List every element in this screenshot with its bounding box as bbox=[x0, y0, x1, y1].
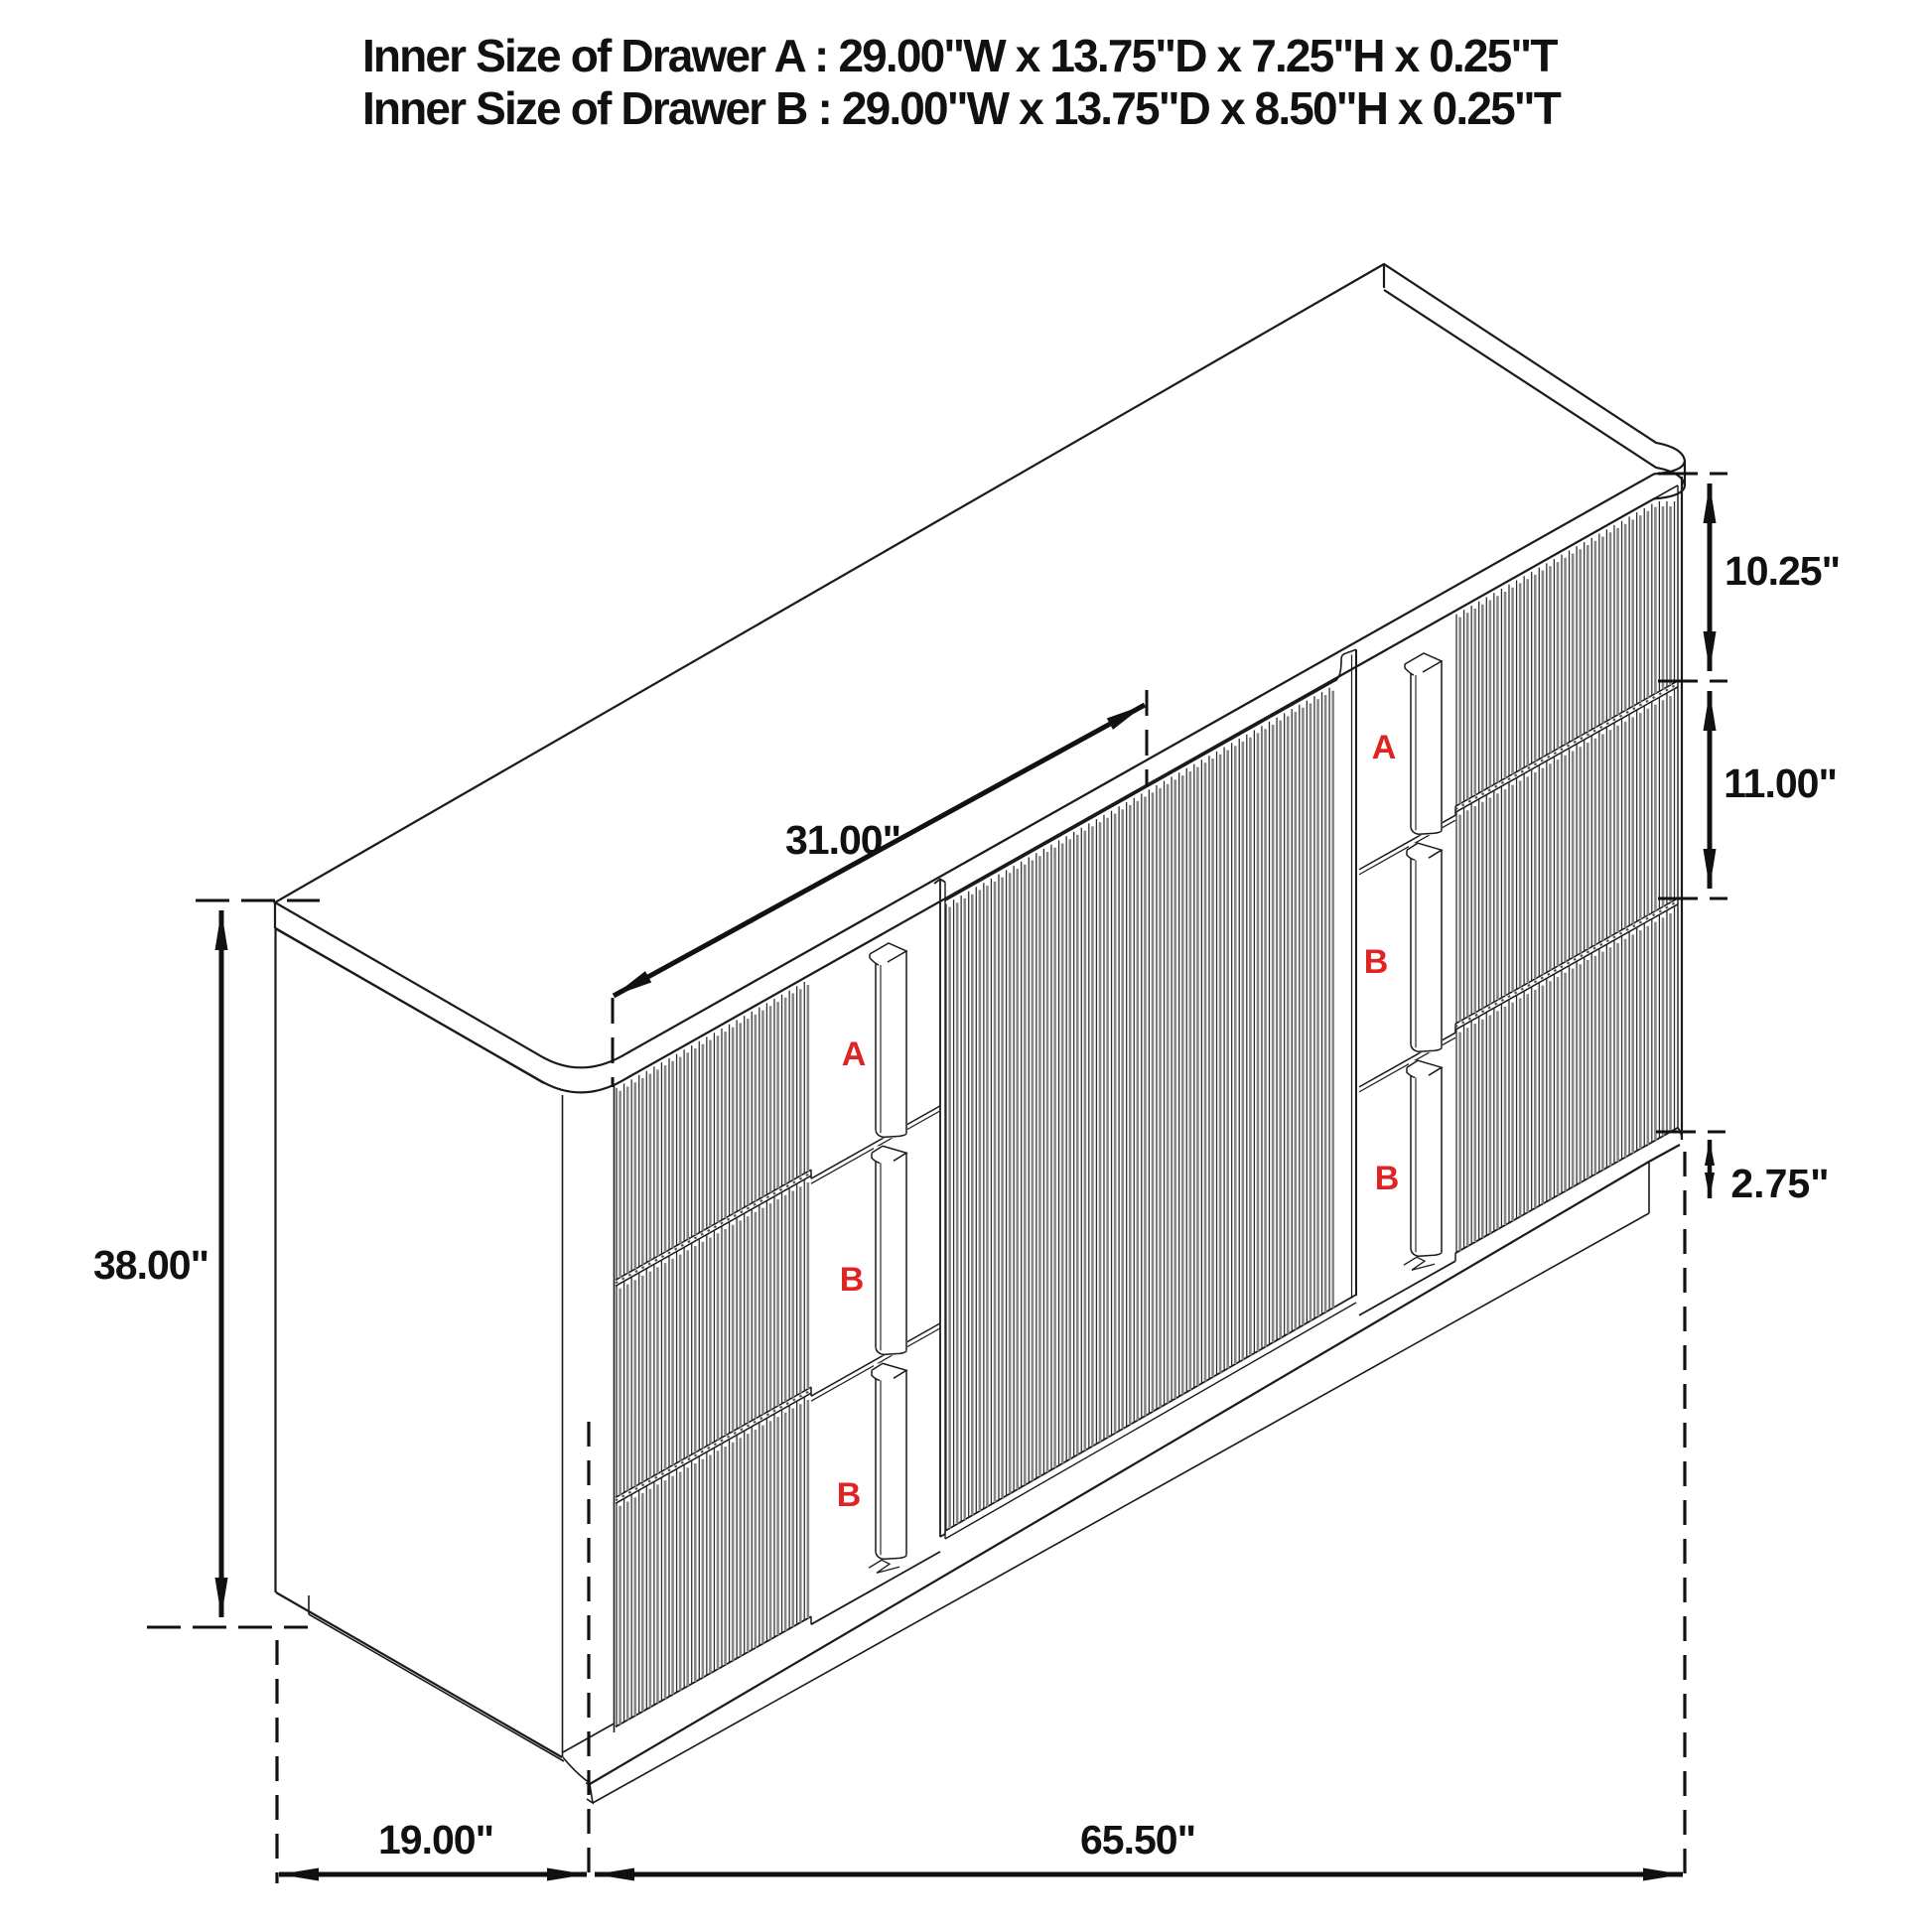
svg-text:Inner Size of Drawer A : 29.00: Inner Size of Drawer A : 29.00"W x 13.75… bbox=[362, 30, 1558, 81]
svg-text:31.00": 31.00" bbox=[785, 817, 900, 863]
svg-text:38.00": 38.00" bbox=[93, 1242, 208, 1288]
svg-text:B: B bbox=[1364, 943, 1389, 981]
svg-text:A: A bbox=[1372, 729, 1397, 766]
svg-text:11.00": 11.00" bbox=[1724, 760, 1837, 806]
svg-text:B: B bbox=[1375, 1160, 1400, 1197]
svg-text:2.75": 2.75" bbox=[1730, 1161, 1829, 1206]
svg-text:10.25": 10.25" bbox=[1725, 548, 1840, 594]
svg-text:B: B bbox=[840, 1261, 865, 1299]
svg-text:65.50": 65.50" bbox=[1080, 1817, 1195, 1863]
svg-text:Inner Size of Drawer B : 29.00: Inner Size of Drawer B : 29.00"W x 13.75… bbox=[362, 82, 1562, 134]
svg-text:19.00": 19.00" bbox=[378, 1817, 493, 1863]
svg-text:B: B bbox=[837, 1476, 862, 1514]
svg-text:A: A bbox=[842, 1035, 867, 1073]
